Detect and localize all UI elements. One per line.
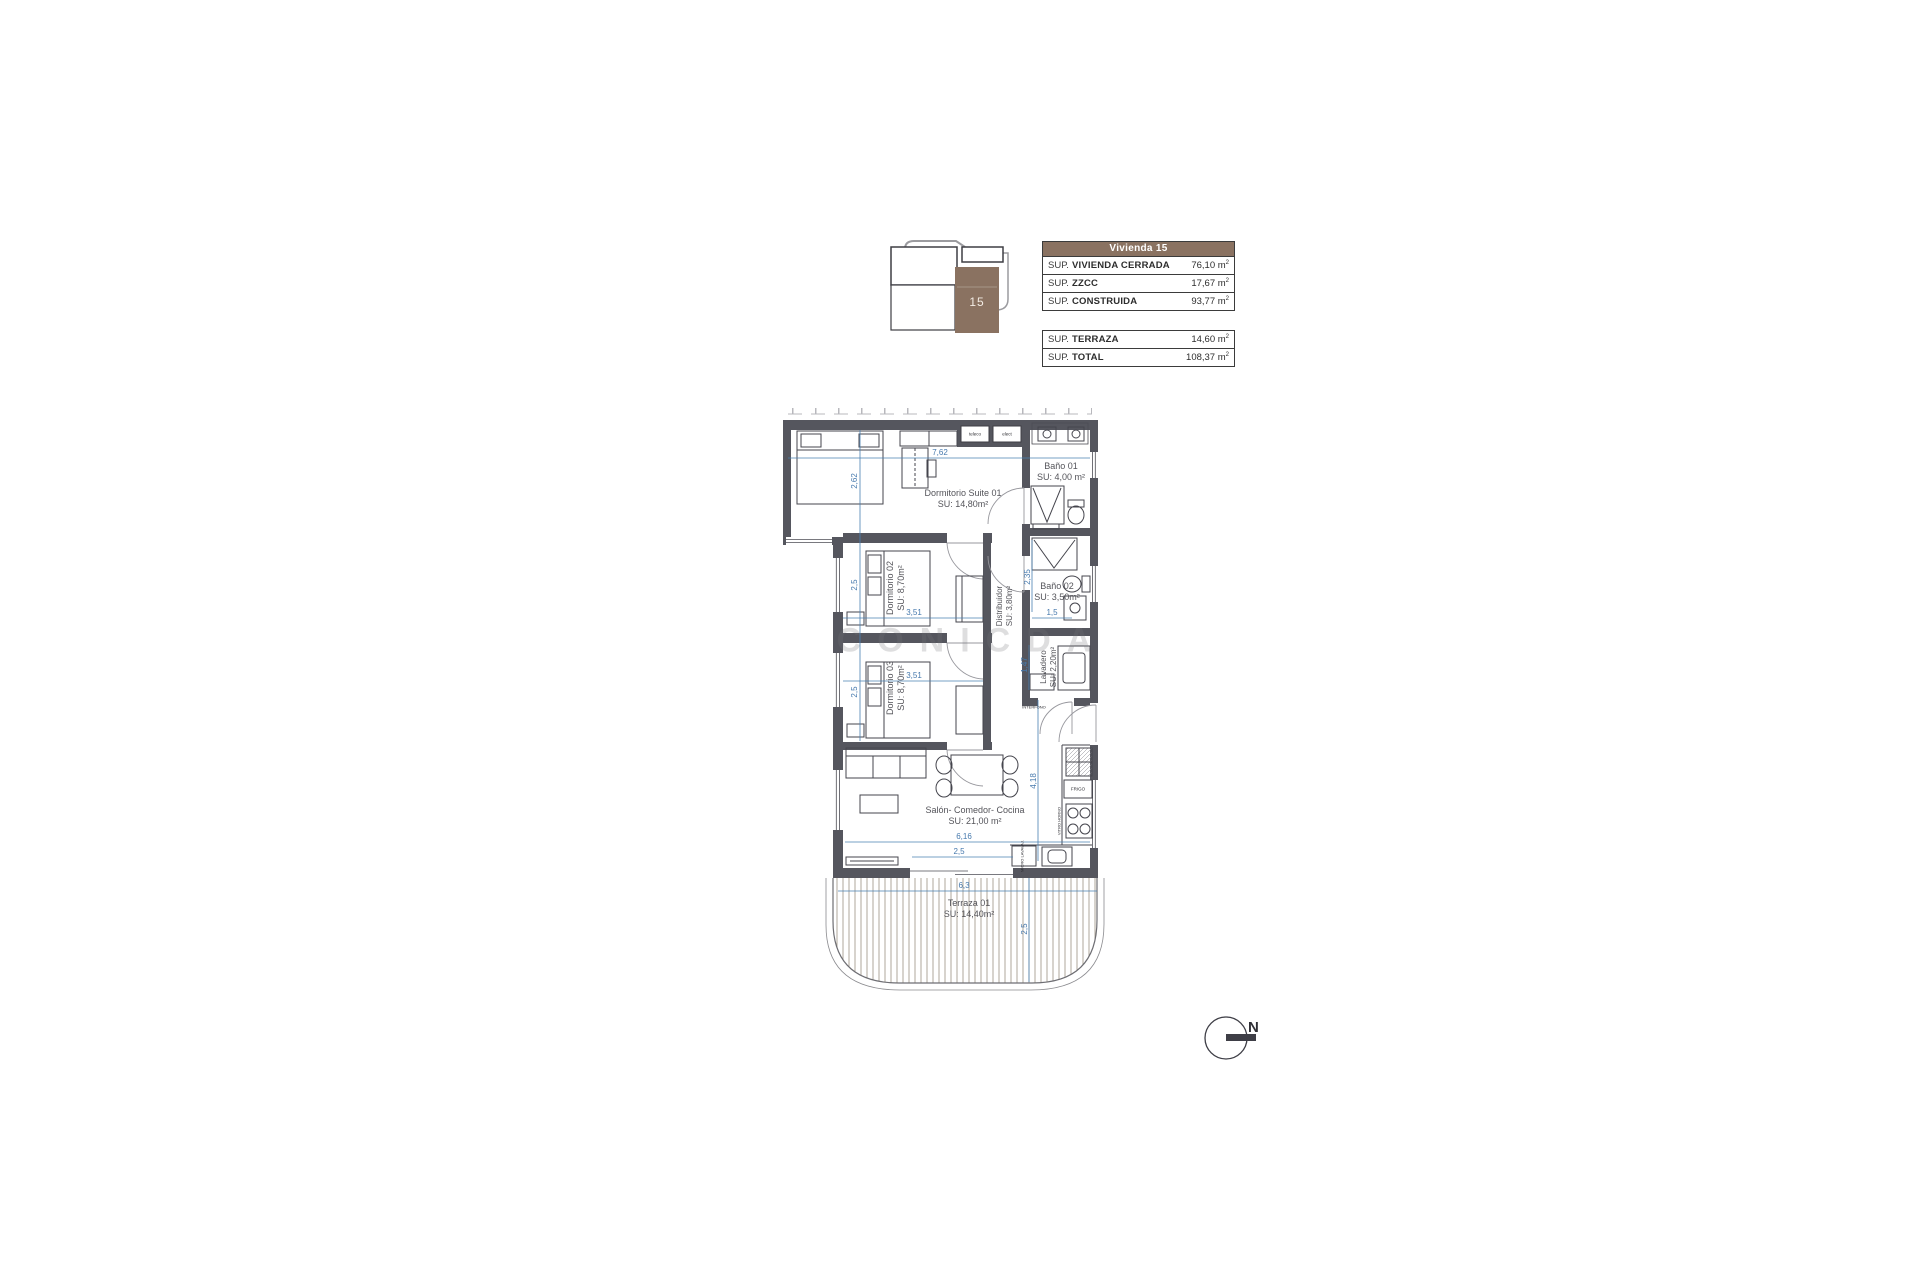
dim-351-dorm02: 3,51: [906, 609, 922, 617]
table-row: SUP.TOTAL 108,37 m2: [1043, 349, 1234, 366]
label-interfono: INTERFONO: [1022, 705, 1046, 710]
terrace: [826, 878, 1104, 990]
dim-351-dorm03: 3,51: [906, 672, 922, 680]
dim-616: 6,16: [956, 833, 972, 841]
totals-table: SUP.TERRAZA 14,60 m2 SUP.TOTAL 108,37 m2: [1042, 330, 1235, 367]
room-label-dormitorio-02: Dormitorio 02SU: 8,70m²: [885, 561, 907, 615]
north-arrow: [1195, 1008, 1270, 1068]
north-label: N: [1248, 1019, 1259, 1036]
room-label-terraza: Terraza 01SU: 14,40m²: [944, 898, 995, 920]
dim-25-dorm02: 2,5: [851, 579, 859, 590]
key-plan-unit-number: 15: [969, 295, 984, 309]
label-elect: elect: [1002, 432, 1012, 437]
dim-25-slider: 2,5: [953, 848, 964, 856]
table-header: Vivienda 15: [1043, 242, 1234, 257]
table-row: SUP.VIVIENDA CERRADA 76,10 m2: [1043, 257, 1234, 275]
room-label-dormitorio-suite-01: Dormitorio Suite 01SU: 14,80m²: [924, 488, 1001, 510]
label-teleco: teleco: [969, 432, 981, 437]
table-row: SUP.CONSTRUIDA 93,77 m2: [1043, 293, 1234, 310]
key-plan-drawing: [880, 225, 1020, 345]
key-plan-unit-a: [891, 247, 957, 285]
party-wall-hatch: [788, 411, 1092, 414]
table-row: SUP.ZZCC 17,67 m2: [1043, 275, 1234, 293]
dim-15: 1,5: [1046, 609, 1057, 617]
room-label-distribuidor: DistribuidorSU: 3,80m²: [995, 586, 1015, 626]
dim-418: 4,18: [1030, 773, 1038, 789]
room-label-bano-01: Baño 01SU: 4,00 m²: [1037, 461, 1085, 483]
dim-25-dorm03: 2,5: [851, 686, 859, 697]
table-row: SUP.TERRAZA 14,60 m2: [1043, 331, 1234, 349]
room-label-salon-comedor-cocina: Salón- Comedor- CocinaSU: 21,00 m²: [925, 805, 1024, 827]
label-vitro-horno: VITRO HORNO: [1057, 807, 1062, 835]
key-plan-unit-c: [891, 285, 955, 330]
room-label-dormitorio-03: Dormitorio 03SU: 8,70m²: [885, 661, 907, 715]
dim-235: 2,35: [1024, 569, 1032, 585]
dim-25-terraza: 2,5: [1021, 923, 1029, 934]
dim-762: 7,62: [932, 449, 948, 457]
dim-262: 2,62: [851, 473, 859, 489]
floorplan-sheet: 15 Vivienda 15 SUP.VIVIENDA CERRADA 76,1…: [0, 0, 1920, 1280]
area-summary-table: Vivienda 15 SUP.VIVIENDA CERRADA 76,10 m…: [1042, 241, 1235, 311]
key-plan-unit-b: [962, 247, 1003, 262]
label-frigo: FRIGO: [1071, 787, 1085, 792]
room-label-bano-02: Baño 02SU: 3,50m²: [1034, 581, 1080, 603]
watermark: CONICDA: [837, 622, 1108, 661]
label-micro-lavavajillas: MICRO LAVAVAJ.: [1020, 840, 1025, 872]
dim-63-terraza: 6,3: [958, 882, 969, 890]
